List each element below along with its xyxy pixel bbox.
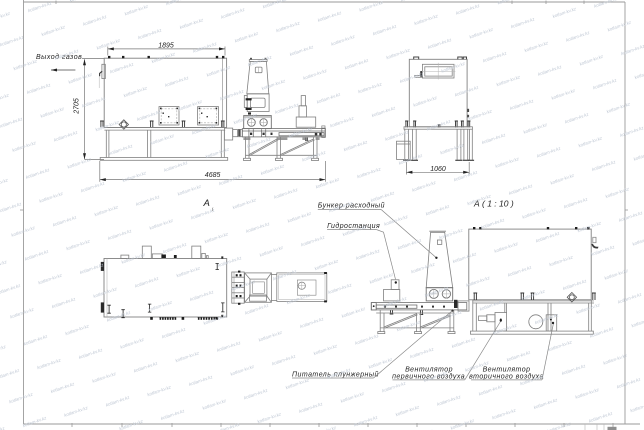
- svg-text:А: А: [203, 198, 210, 209]
- svg-text:1060: 1060: [430, 166, 446, 173]
- svg-text:2705: 2705: [74, 98, 81, 115]
- svg-text:1895: 1895: [158, 42, 174, 49]
- svg-text:4685: 4685: [205, 172, 221, 179]
- svg-text:Вентилятор: Вентилятор: [483, 366, 531, 373]
